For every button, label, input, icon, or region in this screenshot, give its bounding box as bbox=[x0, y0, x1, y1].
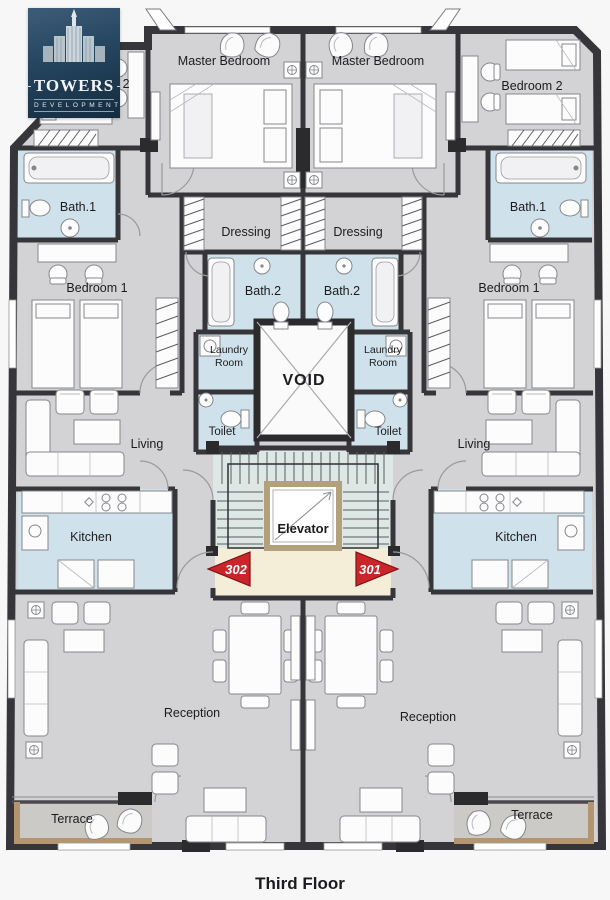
toilet-left-label: Toilet bbox=[209, 426, 237, 438]
bath1-right-label: Bath.1 bbox=[510, 200, 546, 214]
reception-left-label: Reception bbox=[164, 706, 220, 720]
elevator-shaft bbox=[267, 484, 339, 548]
master-bedroom-right-label: Master Bedroom bbox=[332, 54, 424, 68]
master-bedroom-left-label: Master Bedroom bbox=[178, 54, 270, 68]
skyscraper-icon bbox=[28, 8, 120, 62]
bath2-right-label: Bath.2 bbox=[324, 284, 360, 298]
bedroom1-right-label: Bedroom 1 bbox=[478, 281, 539, 295]
laundry-right-label-line1: Laundry bbox=[364, 344, 403, 356]
kitchen-right-label: Kitchen bbox=[495, 530, 537, 544]
towers-development-logo: TOWERS DEVELOPMENT bbox=[28, 8, 120, 118]
kitchen-left-label: Kitchen bbox=[70, 530, 112, 544]
floor-plan-page: 302 301 Master Bedroom Master Bedroom Be… bbox=[0, 0, 610, 900]
unit-302-number: 302 bbox=[225, 562, 247, 577]
bedroom2-right-label: Bedroom 2 bbox=[501, 79, 562, 93]
laundry-left-label-line1: Laundry bbox=[210, 344, 249, 356]
elevator-label: Elevator bbox=[277, 521, 328, 536]
void-label: VOID bbox=[282, 372, 325, 389]
dressing-left-label: Dressing bbox=[221, 225, 270, 239]
laundry-right-label-line2: Room bbox=[369, 357, 397, 369]
toilet-right-label: Toilet bbox=[375, 426, 403, 438]
floor-title: Third Floor bbox=[255, 874, 345, 893]
laundry-left-label-line2: Room bbox=[215, 357, 243, 369]
logo-brand-text: TOWERS bbox=[28, 76, 120, 96]
logo-tagline-text: DEVELOPMENT bbox=[34, 99, 114, 112]
unit-301-number: 301 bbox=[359, 562, 381, 577]
bath2-left-label: Bath.2 bbox=[245, 284, 281, 298]
living-left-label: Living bbox=[131, 437, 164, 451]
furniture-living-left bbox=[26, 390, 124, 476]
furniture-living-right bbox=[482, 390, 580, 476]
bath1-left-label: Bath.1 bbox=[60, 200, 96, 214]
terrace-right-label: Terrace bbox=[511, 808, 553, 822]
terrace-left-label: Terrace bbox=[51, 812, 93, 826]
floor-plan-drawing: 302 301 Master Bedroom Master Bedroom Be… bbox=[0, 0, 610, 900]
living-right-label: Living bbox=[458, 437, 491, 451]
bedroom1-left-label: Bedroom 1 bbox=[66, 281, 127, 295]
reception-right-label: Reception bbox=[400, 710, 456, 724]
dressing-right-label: Dressing bbox=[333, 225, 382, 239]
